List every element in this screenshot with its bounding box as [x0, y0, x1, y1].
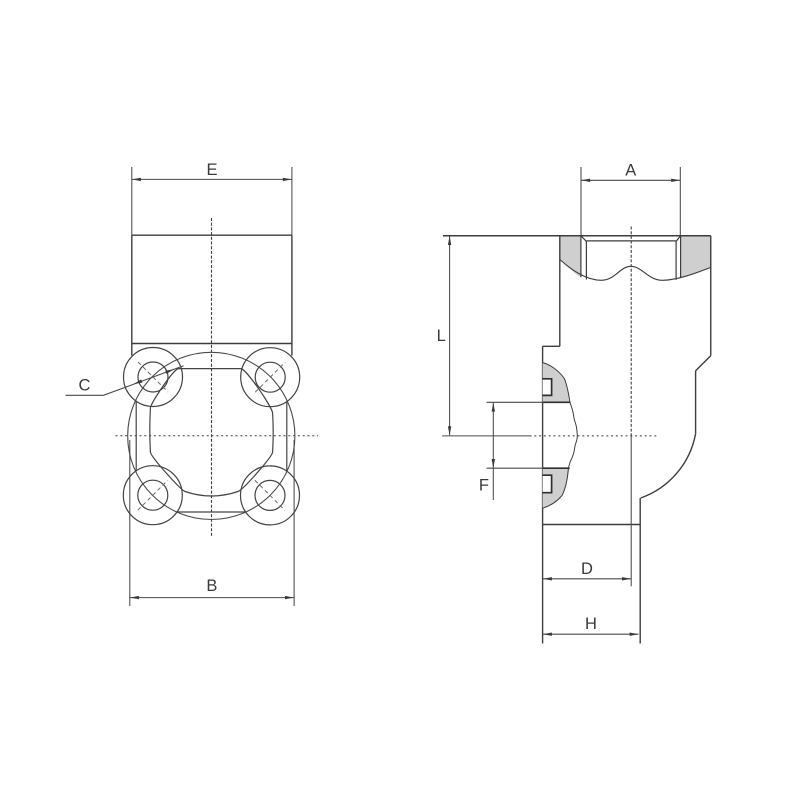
svg-text:E: E [206, 161, 217, 179]
svg-text:A: A [625, 161, 636, 179]
svg-text:H: H [585, 615, 597, 633]
svg-text:D: D [581, 560, 593, 578]
svg-text:B: B [206, 577, 217, 595]
svg-text:C: C [79, 376, 91, 394]
svg-text:L: L [437, 327, 446, 345]
svg-text:F: F [479, 476, 489, 494]
